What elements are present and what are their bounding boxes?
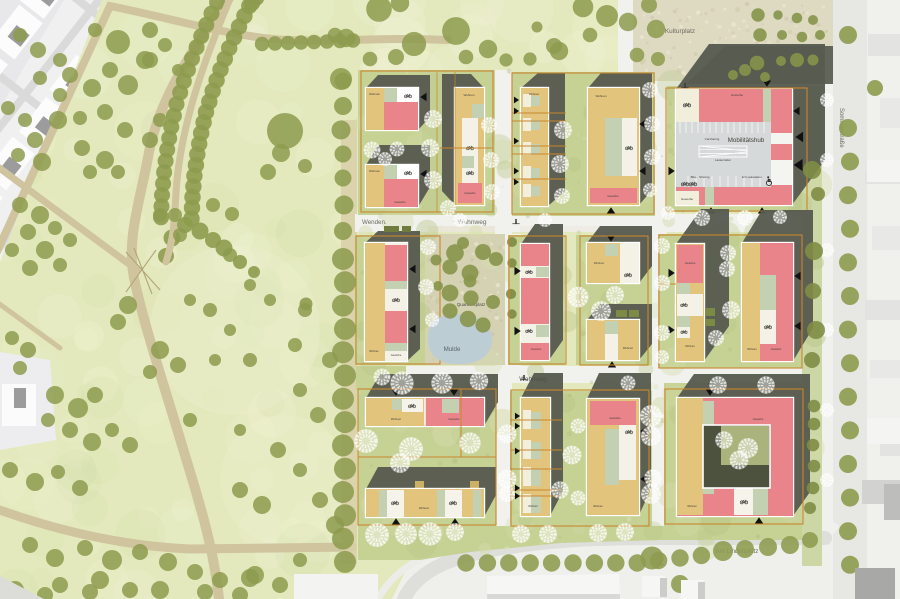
svg-text:Wohnen: Wohnen (463, 93, 474, 97)
svg-text:Gewerbe: Gewerbe (607, 194, 619, 198)
svg-text:Wohnen: Wohnen (687, 504, 697, 508)
svg-text:Gewerbe: Gewerbe (771, 347, 782, 351)
svg-text:Wohnen: Wohnen (369, 92, 380, 96)
svg-text:Mulde: Mulde (444, 346, 461, 353)
svg-text:Wenden.: Wenden. (362, 219, 387, 226)
svg-text:Wohnen: Wohnen (369, 169, 380, 173)
svg-text:Wohnen: Wohnen (391, 417, 402, 421)
svg-text:Gewerbe: Gewerbe (394, 200, 406, 204)
svg-text:Gewerbe: Gewerbe (531, 347, 542, 351)
svg-text:Wohnen: Wohnen (594, 261, 605, 265)
svg-text:Wohnen: Wohnen (419, 506, 430, 510)
svg-text:Gewerbe: Gewerbe (609, 416, 621, 420)
svg-text:Lastenräder: Lastenräder (715, 158, 731, 162)
svg-text:Gewerbe: Gewerbe (681, 197, 694, 201)
svg-text:Wohnen: Wohnen (747, 347, 757, 351)
svg-text:Gewerbe: Gewerbe (753, 417, 764, 421)
svg-text:Gewerbe: Gewerbe (464, 191, 476, 195)
svg-text:Wohnen: Wohnen (593, 504, 603, 508)
svg-text:Carsharing: Carsharing (705, 137, 720, 141)
svg-text:Bike - Sharing: Bike - Sharing (691, 175, 710, 179)
svg-text:Gewerbe: Gewerbe (391, 353, 402, 357)
svg-text:Wohnen: Wohnen (369, 349, 379, 353)
svg-text:Wohnen: Wohnen (685, 344, 695, 348)
svg-text:Wohnen: Wohnen (623, 346, 634, 350)
svg-text:Wohnen: Wohnen (529, 92, 540, 96)
svg-text:Mobilitätshub: Mobilitätshub (728, 137, 765, 144)
svg-text:Kulturplatz: Kulturplatz (665, 28, 695, 35)
svg-text:E// Ladestation: E// Ladestation (742, 175, 762, 179)
svg-text:Gewerbe: Gewerbe (685, 261, 696, 265)
svg-text:Wohnen: Wohnen (528, 504, 538, 508)
svg-text:Wohnen: Wohnen (595, 94, 606, 98)
svg-text:Gewerbe: Gewerbe (448, 417, 460, 421)
svg-text:Gewerbe: Gewerbe (731, 93, 744, 97)
